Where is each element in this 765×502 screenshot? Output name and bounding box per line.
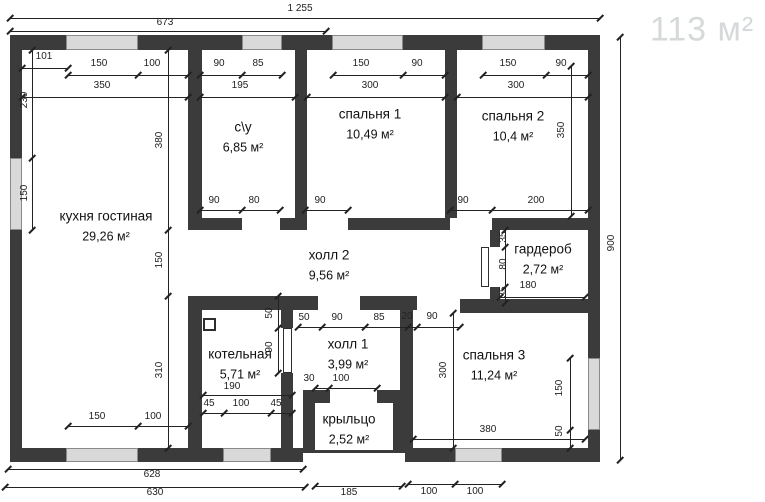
dimension-label: 100: [145, 412, 162, 422]
dimension-tick: [276, 206, 283, 213]
dimension-label: 150: [89, 412, 106, 422]
porch-edge-line: [303, 450, 405, 453]
room-label: гардероб2,72 м²: [488, 241, 598, 278]
dimension-label: 100: [233, 399, 250, 409]
dimension-tick: [301, 483, 308, 490]
wall-segment: [295, 50, 307, 230]
boiler-icon: [203, 318, 216, 331]
dimension-label: 300: [362, 81, 379, 91]
room-name: с\у: [203, 119, 283, 136]
dimension-tick: [28, 226, 35, 233]
dimension-label: 90: [208, 196, 219, 206]
total-area-watermark: 113 м²: [650, 11, 754, 50]
room-label: с\у6,85 м²: [203, 119, 283, 156]
room-label: холл 29,56 м²: [274, 247, 384, 284]
dimension-label: 80: [248, 196, 259, 206]
room-area: 3,99 м²: [298, 358, 398, 373]
dimension-label: 30: [303, 374, 314, 384]
room-label: котельная5,71 м²: [185, 346, 295, 383]
dimension-label: 100: [421, 487, 438, 497]
dimension-label: 150: [353, 59, 370, 69]
dimension-label: 50: [265, 307, 275, 318]
dimension-line: [620, 37, 621, 460]
dimension-line: [68, 75, 188, 76]
room-area: 6,85 м²: [203, 141, 283, 156]
dimension-label: 180: [520, 281, 537, 291]
window: [242, 35, 282, 50]
dimension-label: 190: [224, 382, 241, 392]
dimension-tick: [616, 456, 623, 463]
dimension-line: [305, 210, 348, 211]
dimension-line: [457, 97, 588, 98]
room-area: 2,52 м²: [299, 433, 399, 448]
wall-segment: [280, 218, 305, 230]
window: [588, 358, 600, 430]
dimension-label: 85: [373, 313, 384, 323]
dimension-label: 350: [94, 81, 111, 91]
dimension-label: 380: [155, 132, 165, 149]
dimension-line: [315, 486, 402, 487]
window: [332, 35, 403, 50]
dimension-label: 90: [411, 59, 422, 69]
dimension-label: 195: [232, 81, 249, 91]
dimension-label: 900: [607, 235, 617, 252]
dimension-label: 101: [36, 52, 53, 62]
dimension-label: 310: [155, 362, 165, 379]
dimension-label: 150: [555, 380, 565, 397]
room-label: холл 13,99 м²: [298, 336, 398, 373]
room-name: спальня 3: [434, 347, 554, 364]
dimension-label: 90: [426, 312, 437, 322]
dimension-label: 673: [157, 18, 174, 28]
room-area: 11,24 м²: [434, 369, 554, 384]
room-area: 10,4 м²: [453, 130, 573, 145]
dimension-label: 230: [20, 92, 30, 109]
dimension-line: [68, 426, 188, 427]
dimension-label: 1 255: [287, 4, 312, 14]
dimension-label: 45: [270, 399, 281, 409]
room-name: кухня гостиная: [50, 208, 162, 225]
wall-segment: [348, 218, 450, 230]
room-label: спальня 210,4 м²: [453, 108, 573, 145]
dimension-line: [200, 97, 295, 98]
dimension-label: 150: [500, 59, 517, 69]
dimension-label: 380: [480, 425, 497, 435]
dimension-line: [168, 50, 169, 448]
dimension-label: 150: [20, 185, 30, 202]
room-name: крыльцо: [299, 411, 399, 428]
wall-segment: [188, 218, 242, 230]
room-area: 29,26 м²: [50, 230, 162, 245]
dimension-label: 90: [331, 313, 342, 323]
room-area: 9,56 м²: [274, 269, 384, 284]
dimension-line: [203, 395, 292, 396]
room-name: спальня 2: [453, 108, 573, 125]
dimension-line: [315, 388, 377, 389]
dimension-line: [450, 210, 588, 211]
dimension-line: [307, 97, 445, 98]
dimension-line: [570, 358, 571, 448]
dimension-label: 300: [508, 81, 525, 91]
dimension-label: 50: [298, 313, 309, 323]
dimension-line: [203, 413, 292, 414]
room-name: холл 1: [298, 336, 398, 353]
dimension-tick: [322, 27, 329, 34]
dimension-line: [413, 439, 585, 440]
room-area: 2,72 м²: [488, 263, 598, 278]
window: [455, 448, 502, 462]
window: [66, 35, 138, 50]
dimension-line: [22, 97, 188, 98]
dimension-tick: [596, 14, 603, 21]
dimension-label: 90: [457, 196, 468, 206]
dimension-line: [22, 68, 68, 69]
dimension-line: [10, 31, 326, 32]
dimension-tick: [299, 465, 306, 472]
dimension-label: 628: [144, 470, 161, 480]
wall-segment: [405, 448, 600, 462]
window: [482, 35, 545, 50]
dimension-tick: [498, 480, 505, 487]
dimension-label: 100: [333, 374, 350, 384]
wall-segment: [490, 303, 600, 313]
room-label: спальня 311,24 м²: [434, 347, 554, 384]
dimension-label: 100: [467, 487, 484, 497]
dimension-tick: [344, 206, 351, 213]
wall-segment: [188, 296, 318, 310]
dimension-label: 45: [203, 399, 214, 409]
dimension-tick: [278, 71, 285, 78]
room-name: котельная: [185, 346, 295, 363]
wall-segment: [281, 373, 293, 448]
room-label: крыльцо2,52 м²: [299, 411, 399, 448]
dimension-label: 85: [252, 59, 263, 69]
dimension-line: [500, 297, 585, 298]
dimension-label: 35: [499, 286, 509, 297]
dimension-tick: [456, 323, 463, 330]
dimension-label: 100: [144, 59, 161, 69]
dimension-line: [333, 75, 445, 76]
dimension-label: 200: [528, 196, 545, 206]
dimension-label: 90: [314, 196, 325, 206]
dimension-label: 185: [341, 488, 358, 498]
wall-segment: [492, 218, 600, 230]
room-name: гардероб: [488, 241, 598, 258]
dimension-label: 90: [213, 59, 224, 69]
dimension-line: [10, 18, 600, 19]
dimension-label: 150: [155, 252, 165, 269]
window: [223, 448, 271, 462]
room-name: спальня 1: [310, 106, 430, 123]
floor-plan: 1 25567310115010090851509015090350195300…: [0, 0, 765, 502]
wall-segment: [377, 390, 405, 403]
dimension-label: 90: [555, 59, 566, 69]
room-area: 10,49 м²: [310, 128, 430, 143]
window: [66, 448, 138, 462]
room-area: 5,71 м²: [185, 368, 295, 383]
floor-plan-page: { "watermark": { "text": "113 м²" }, "co…: [0, 0, 765, 502]
wall-segment: [281, 296, 293, 328]
dimension-label: 150: [91, 59, 108, 69]
dimension-label: 50: [555, 425, 565, 436]
room-label: спальня 110,49 м²: [310, 106, 430, 143]
dimension-line: [483, 75, 588, 76]
room-label: кухня гостиная29,26 м²: [50, 208, 162, 245]
dimension-label: 20: [401, 312, 412, 322]
dimension-line: [32, 50, 33, 230]
room-name: холл 2: [274, 247, 384, 264]
dimension-label: 630: [147, 488, 164, 498]
